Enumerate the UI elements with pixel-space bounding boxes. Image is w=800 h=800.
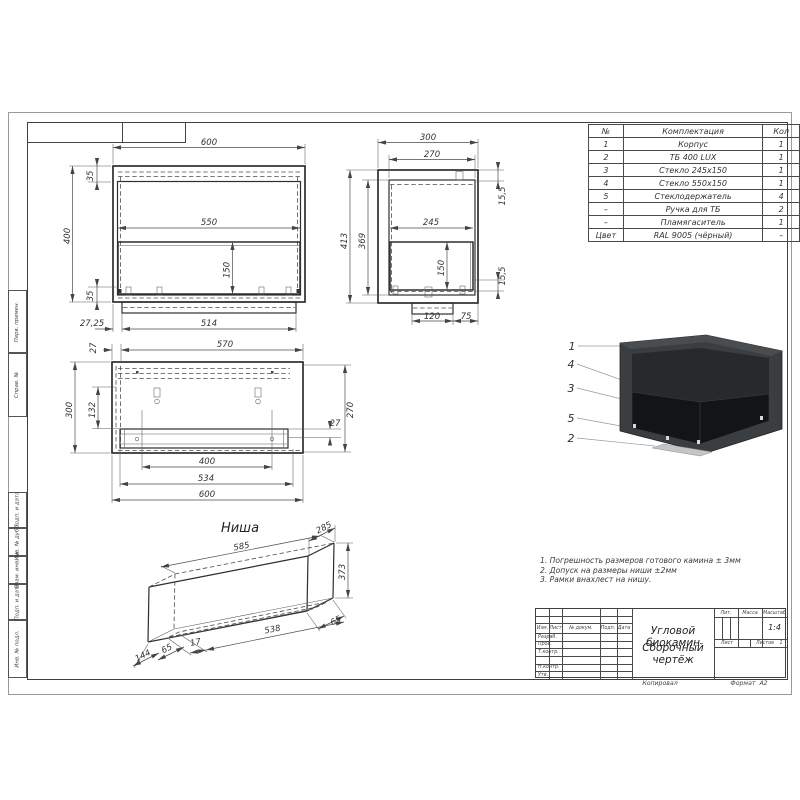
callout-1: 1 [569,340,576,353]
side-dim-height-outer: 413 [340,233,350,249]
tb-header-izm: Изм. [537,626,548,631]
callout-3: 3 [568,382,575,395]
plan-dim-inner-depth: 132 [88,402,98,418]
parts-header-num: № [589,125,624,138]
note-2: 2. Допуск на размеры ниши ±2мм [540,566,770,576]
side-dim-base-width: 120 [424,312,440,322]
notes: 1. Погрешность размеров готового камина … [540,556,770,585]
side-dim-height-inner: 369 [358,233,368,249]
glass-holder [666,436,669,440]
table-row: –Ручка для ТБ2 [589,203,800,216]
glass-holder [697,440,700,444]
format-value: А2 [759,680,767,687]
niche-dim-right-offset: 65 [329,614,343,628]
title-block: Изм. Лист № докум. Подп. Дата Разраб. Пр… [535,608,786,678]
under-frame-strip: Копировал Формат А2 [0,680,800,694]
tb-sheet-label: Лист [721,641,733,646]
niche-dim-depth: 285 [315,520,334,536]
parts-header-row: № Комплектация Кол [589,125,800,138]
side-dim-bottom-gap: 15,5 [498,267,508,286]
tb-row-razrab: Разраб. [538,635,557,640]
tb-row-prov: Пров. [538,642,552,647]
format-label: Формат А2 [712,680,786,687]
side-dim-opening-width: 270 [424,150,440,160]
plan-view: 570 27 300 132 270 27 [65,340,356,503]
front-dim-base-width: 514 [201,319,217,329]
glass-holder [760,416,763,420]
front-dim-top-inset: 35 [86,171,96,182]
side-dim-base-offset: 75 [461,312,472,322]
front-dim-glass-width: 550 [201,218,217,228]
plan-dim-tray: 534 [198,474,214,484]
side-dim-width: 300 [420,133,436,143]
table-row: 2ТБ 400 LUX1 [589,151,800,164]
tb-scale-label: Масштаб [763,611,786,616]
plan-dim-depth: 300 [65,402,75,418]
niche-title: Ниша [221,521,259,536]
plan-dim-top-width: 570 [217,340,233,350]
doc-title-line2: Сборочный чертёж [632,642,714,666]
callout-2: 2 [568,432,575,445]
plan-dim-burner: 400 [199,457,215,467]
render-3d: 1 4 3 5 2 [568,335,783,456]
side-dim-glass-height: 150 [437,260,447,276]
niche-dim-length: 585 [233,541,251,554]
niche-dim-corner: 144 [134,648,153,664]
table-row: 5Стеклодержатель4 [589,190,800,203]
table-row: 1Корпус1 [589,138,800,151]
tb-sheets-value: 1 [779,641,782,646]
callout-4: 4 [568,358,575,371]
table-row: –Пламягаситель1 [589,216,800,229]
copied-label: Копировал [610,680,710,687]
glass-holder [633,424,636,428]
niche-dim-height: 373 [338,564,348,580]
front-dim-base-offset: 27,25 [80,319,104,329]
tb-lit-label: Лит. [720,611,731,616]
parts-header-qty: Кол [763,125,800,138]
front-dim-width: 600 [201,138,217,148]
side-dim-top-gap: 15,5 [498,187,508,206]
parts-table: № Комплектация Кол 1Корпус1 2ТБ 400 LUX1… [588,124,800,242]
tb-mass-label: Масса [742,611,757,616]
table-row: ЦветRAL 9005 (чёрный)– [589,229,800,242]
parts-header-name: Комплектация [623,125,763,138]
tb-header-dokum: № докум. [569,626,593,631]
scale-value: 1:4 [768,623,781,632]
front-dim-bottom-inset: 35 [86,291,96,302]
callout-5: 5 [568,412,575,425]
niche-view: Ниша 585 285 [133,520,353,668]
plan-dim-gap: 27 [330,419,341,429]
plan-dim-opening-depth: 270 [346,402,356,418]
tb-row-nkontr: Н.контр. [538,665,559,670]
niche-dim-bottom-length: 538 [264,623,282,636]
note-1: 1. Погрешность размеров готового камина … [540,556,770,566]
tb-header-data: Дата [618,626,630,631]
niche-dim-small: 17 [189,637,202,649]
drawing-sheet: Перв. примен. Справ. № Подп. и дата Инв.… [0,0,800,800]
front-view: 600 400 35 35 550 150 [63,138,305,332]
niche-dim-left-offset: 65 [160,642,174,656]
plan-dim-width: 600 [199,490,215,500]
front-dim-height: 400 [63,228,73,244]
tb-row-utv: Утв. [538,673,548,678]
table-row: 4Стекло 550х1501 [589,177,800,190]
side-view: 300 270 15,5 245 150 15,5 [340,133,508,325]
tb-sheets-label: Листов [756,641,774,646]
plan-dim-wall: 27 [89,342,99,353]
front-dim-glass-height: 150 [223,262,233,278]
table-row: 3Стекло 245х1501 [589,164,800,177]
note-3: 3. Рамки внахлест на нишу. [540,575,770,585]
side-dim-mid-width: 245 [423,218,439,228]
tb-row-tkontr: Т.контр. [538,650,559,655]
tb-header-list: Лист [549,626,561,631]
tb-header-podp: Подп. [601,626,616,631]
